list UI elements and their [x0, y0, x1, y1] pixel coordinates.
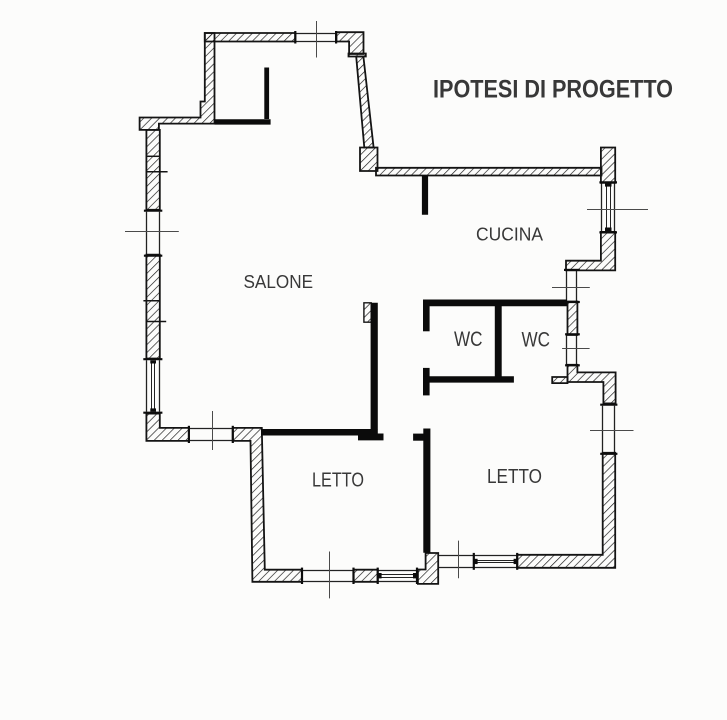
svg-text:WC: WC [522, 328, 551, 352]
svg-text:LETTO: LETTO [487, 465, 542, 488]
svg-text:SALONE: SALONE [244, 272, 314, 292]
svg-text:CUCINA: CUCINA [476, 225, 543, 245]
svg-text:LETTO: LETTO [312, 468, 364, 491]
svg-text:IPOTESI DI PROGETTO: IPOTESI DI PROGETTO [433, 76, 673, 104]
svg-text:WC: WC [454, 327, 483, 351]
